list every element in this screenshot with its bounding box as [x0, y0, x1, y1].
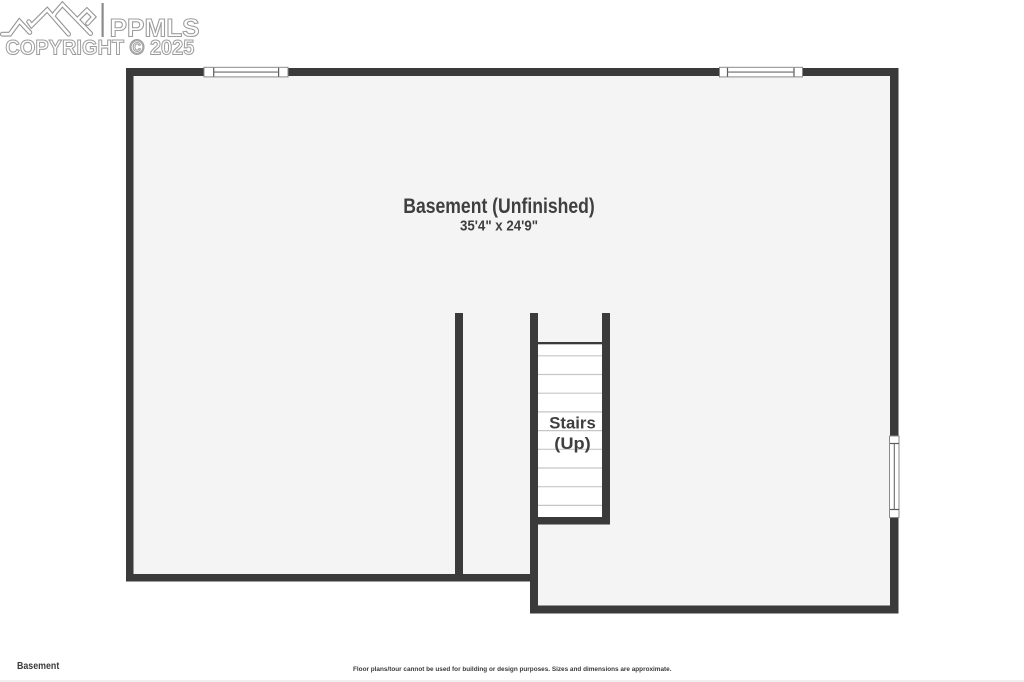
svg-text:Floor plans/tour cannot be use: Floor plans/tour cannot be used for buil… [353, 666, 672, 673]
svg-text:Basement (Unfinished): Basement (Unfinished) [403, 195, 595, 218]
svg-text:(Up): (Up) [554, 434, 591, 453]
svg-text:COPYRIGHT © 2025: COPYRIGHT © 2025 [5, 37, 194, 60]
svg-text:Stairs: Stairs [549, 414, 596, 433]
svg-text:35'4" x 24'9": 35'4" x 24'9" [460, 219, 538, 235]
svg-text:Basement: Basement [17, 660, 60, 672]
